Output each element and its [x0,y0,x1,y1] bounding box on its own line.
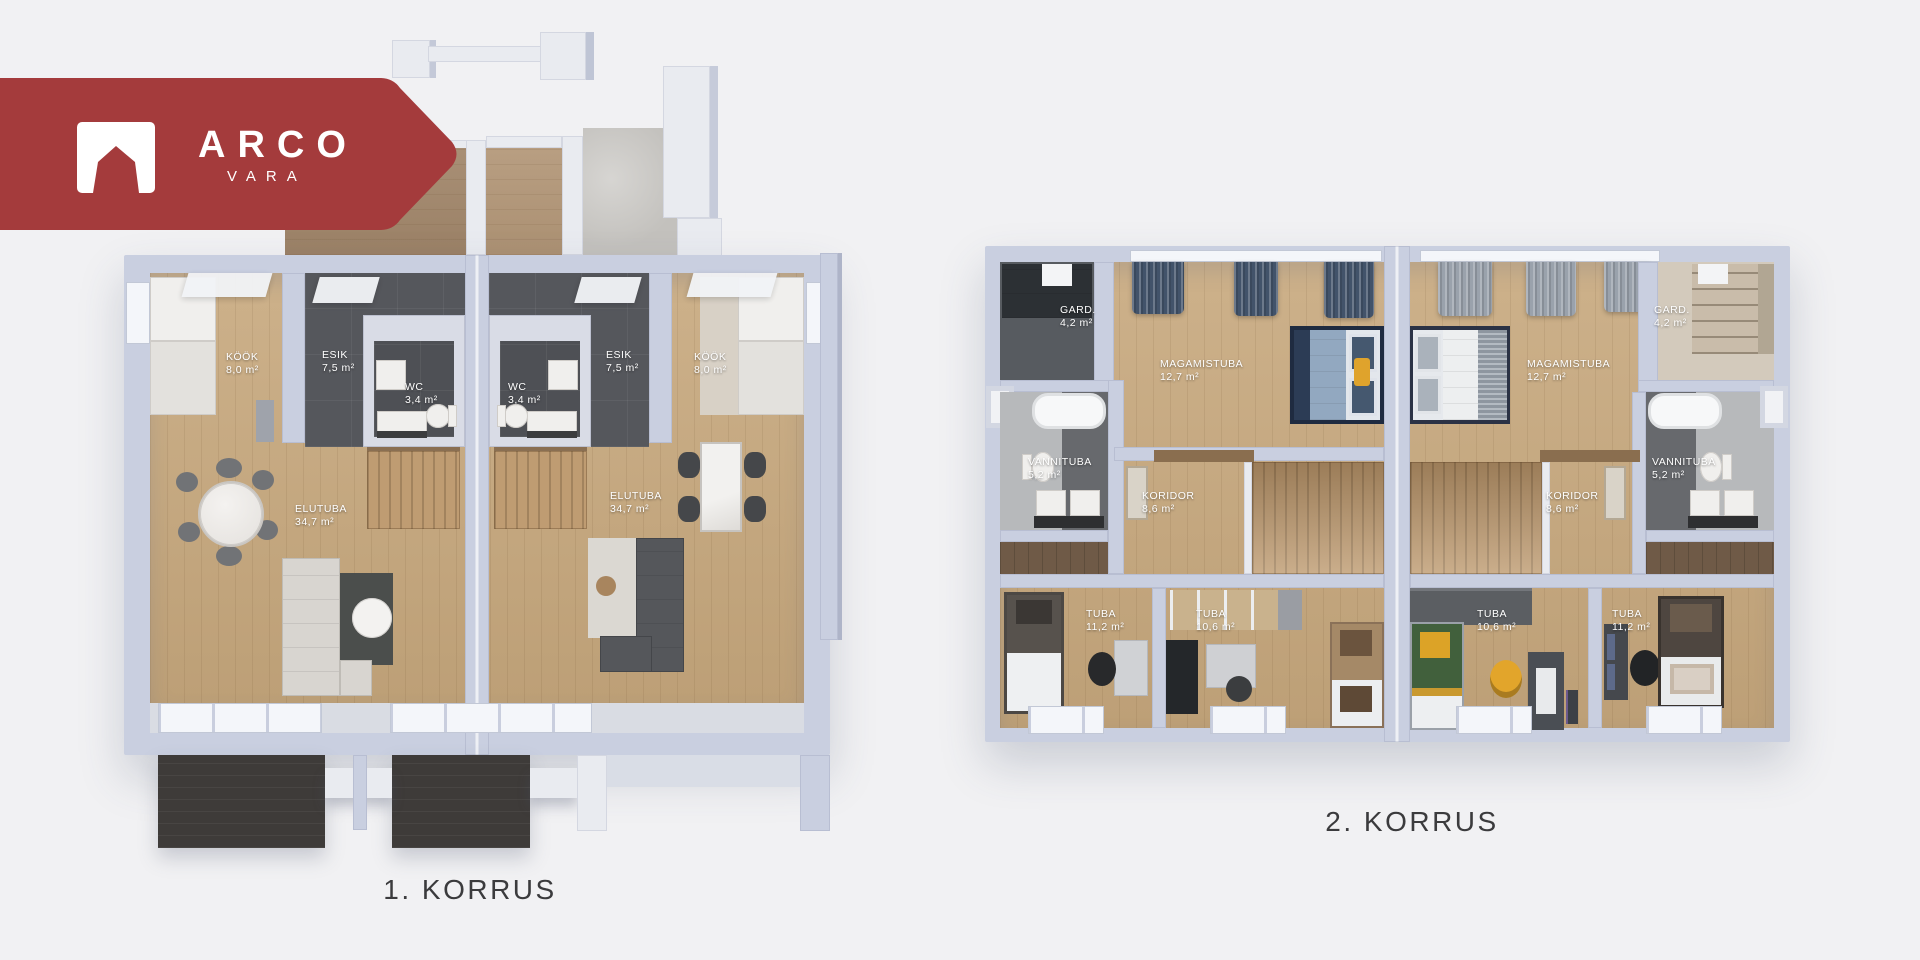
kitchen-counter [150,341,216,415]
interior-wall [1108,380,1124,574]
railing [1540,450,1640,462]
sink [377,411,427,433]
corner-post [800,755,830,831]
chair [216,546,242,566]
interior-wall [1094,262,1114,392]
chair [678,496,700,522]
sofa-dark-chaise [600,636,652,672]
room-label-esik: ESIK7,5 m² [606,349,639,375]
window [158,703,322,733]
stair-edge [1244,462,1252,574]
chair-yellow [1490,660,1522,698]
room-label-esik: ESIK7,5 m² [322,349,355,375]
stair-edge [1542,462,1550,574]
window [126,282,150,344]
window [1646,706,1722,734]
window [1420,250,1660,262]
wardrobe-side [1758,264,1774,354]
desk-panel [1536,668,1556,714]
pillow [1340,630,1372,656]
room-label-elutuba: ELUTUBA34,7 m² [610,490,662,516]
curtain [1132,262,1184,314]
curtain [1324,262,1374,318]
room-label-koridor: KORIDOR8,6 m² [1546,490,1599,516]
room-label-elutuba: ELUTUBA34,7 m² [295,503,347,529]
stairs [494,447,587,529]
radiator [256,400,274,442]
sink-counter [527,431,577,438]
wardrobe-black [1166,640,1198,714]
bed-tray [1354,358,1370,386]
pillow [1340,686,1372,712]
dining-table-round [198,481,264,547]
pillow [1415,334,1441,372]
railing [1154,450,1254,462]
stairs [1410,462,1542,574]
porch-wall [562,136,583,255]
room-label-magamistuba: MAGAMISTUBA12,7 m² [1160,358,1243,384]
sink [1036,490,1066,516]
room-label-kook: KÖÖK8,0 m² [226,351,259,377]
sink [1724,490,1754,516]
bathtub [1648,393,1722,429]
party-wall [1384,246,1410,742]
room-label-gard: GARD.4,2 m² [1654,304,1690,330]
wall-nook [1760,386,1788,428]
interior-wall [1000,530,1108,542]
sink [527,411,577,433]
room-label-koridor: KORIDOR8,6 m² [1142,490,1195,516]
stairs [367,447,460,529]
vanity-counter [1034,516,1104,528]
chair [744,496,766,522]
pillow [1670,604,1712,632]
window [1210,706,1286,734]
sofa [282,558,340,696]
chair [678,452,700,478]
exterior-beam [428,46,542,62]
window [1028,706,1104,734]
chair [1226,676,1252,702]
toilet [426,404,450,428]
party-wall-stub [353,755,367,830]
interior-wall [1632,392,1646,574]
curtain [1234,262,1278,316]
skylight [687,273,778,297]
room-label-gard: GARD.4,2 m² [1060,304,1096,330]
monitor [1607,664,1615,690]
room-label-tuba: TUBA10,6 m² [1196,608,1235,634]
window [1130,250,1382,262]
landing-dark-wood [1646,542,1774,574]
toilet [504,404,528,428]
office-chair [1088,652,1116,686]
sink-counter [377,431,427,438]
interior-wall [1000,380,1122,392]
interior-wall [1646,530,1774,542]
room-label-tuba: TUBA10,6 m² [1477,608,1516,634]
interior-wall [1588,588,1602,728]
toilet-tank [1722,454,1732,480]
interior-wall [649,273,672,443]
curtain [1438,262,1492,316]
bed-throw [1294,330,1310,420]
closet-end [1278,590,1302,630]
chimney [540,32,594,80]
dining-table [700,442,742,532]
entrance-porch-right [486,148,562,255]
bed-stripe [1412,688,1462,696]
room-label-magamistuba: MAGAMISTUBA12,7 m² [1527,358,1610,384]
brand-name: ARCO [198,124,358,167]
room-label-vannituba: VANNITUBA5,2 m² [1652,456,1716,482]
canvas: KÖÖK8,0 m² ESIK7,5 m² WC3,4 m² ELUTUBA34… [0,0,1920,960]
room-label-tuba: TUBA11,2 m² [1612,608,1650,634]
room-label-wc: WC3,4 m² [508,381,541,407]
curtain [1526,262,1576,316]
exterior-wall-tall [663,66,718,218]
party-wall [465,255,489,755]
brand-sub: VARA [227,168,307,185]
logo-house-icon [77,122,155,194]
skylight [1698,264,1728,284]
terrace [392,755,530,848]
bed-sheet [1007,653,1061,711]
building-face [607,755,830,787]
landing-dark-wood [1000,542,1108,574]
bathtub [1032,393,1106,429]
pillow [1670,664,1714,694]
room-label-wc: WC3,4 m² [405,381,438,407]
washing-machine [548,360,578,390]
window [390,703,592,733]
side-table [596,576,616,596]
porch-wall [486,136,562,148]
chair [216,458,242,478]
toilet-tank [448,405,457,427]
kitchen-tile-floor [700,277,738,415]
skylight [182,273,273,297]
room-label-kook: KÖÖK8,0 m² [694,351,727,377]
coffee-table [352,598,392,638]
pillow [1016,600,1052,624]
skylight [312,277,379,303]
floor1-title: 1. KORRUS [310,874,630,906]
room-label-tuba: TUBA11,2 m² [1086,608,1124,634]
desk [1114,640,1148,696]
terrace [158,755,325,848]
sink [1070,490,1100,516]
office-chair [1630,650,1660,686]
stairs [1252,462,1384,574]
skylight [1042,264,1072,286]
floor2-title: 2. KORRUS [1252,806,1572,838]
room-label-vannituba: VANNITUBA5,2 m² [1028,456,1092,482]
brand-banner: ARCO VARA [0,70,480,238]
exterior-wall [577,755,607,831]
pillow [1415,376,1441,414]
pillow [1420,632,1450,658]
interior-wall [1410,574,1774,588]
chair [178,522,200,542]
interior-wall [1000,574,1384,588]
exterior-wall-low [677,218,722,258]
mirror-board [1604,466,1626,520]
chair [744,452,766,478]
bed-knit-blanket [1478,330,1507,420]
sink [1690,490,1720,516]
toilet-tank [497,405,506,427]
monitor [1566,690,1578,724]
vanity-counter [1688,516,1758,528]
chair [176,472,198,492]
interior-wall [1638,380,1774,392]
bed-sheet [1412,696,1462,728]
kitchen-counter [738,341,804,415]
chair [252,470,274,490]
interior-wall [282,273,305,443]
sofa-chaise [340,660,372,696]
monitor [1607,634,1615,660]
terrace-step [530,768,577,798]
detached-wall [820,253,842,640]
washing-machine [376,360,406,390]
interior-wall [1152,588,1166,728]
window [1456,706,1532,734]
skylight [574,277,641,303]
